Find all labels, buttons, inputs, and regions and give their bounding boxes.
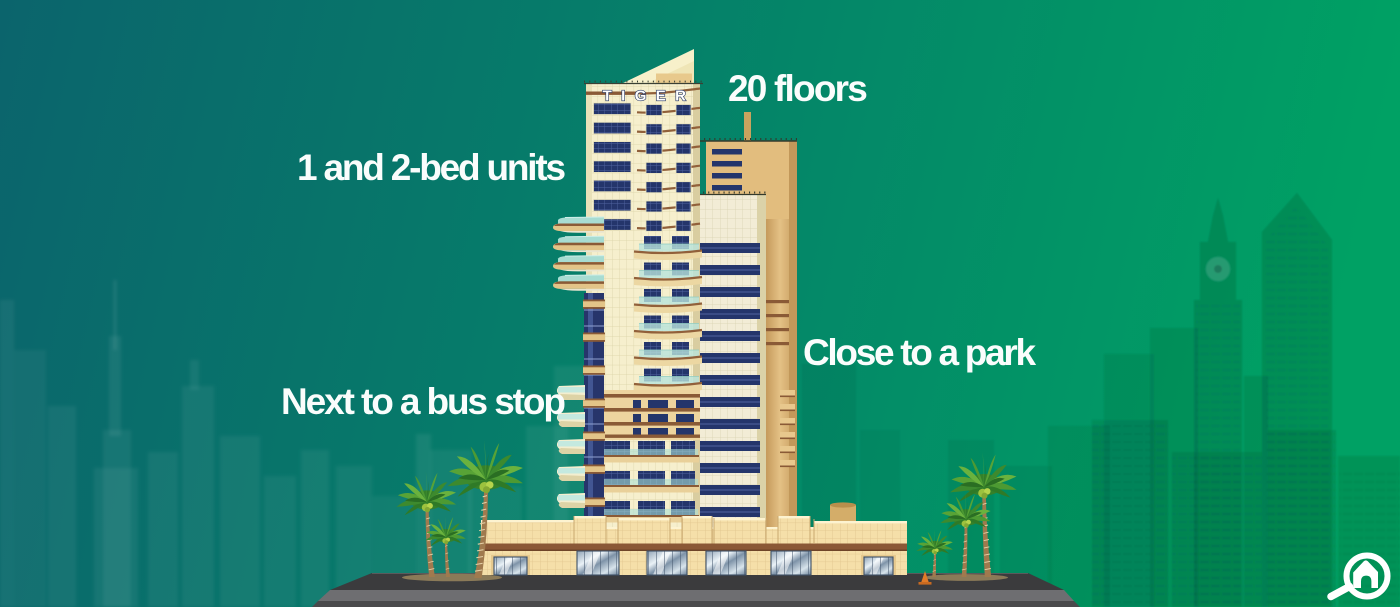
svg-text:Next to a bus stop: Next to a bus stop: [281, 381, 565, 422]
svg-text:TIGER: TIGER: [603, 88, 696, 105]
svg-text:20 floors: 20 floors: [728, 68, 867, 109]
svg-text:1 and 2-bed units: 1 and 2-bed units: [297, 147, 565, 188]
svg-text:Close to a park: Close to a park: [803, 332, 1036, 373]
